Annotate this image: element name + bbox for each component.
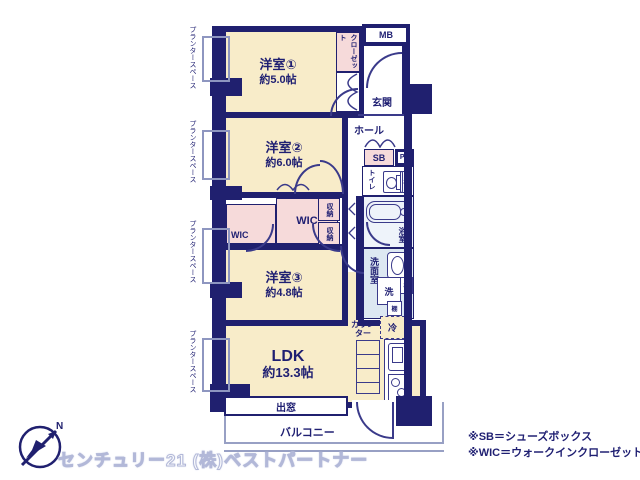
room-1-name: 洋室①: [259, 56, 296, 73]
shoe-box: SB: [364, 149, 394, 166]
planter-box-4: [202, 338, 230, 392]
balcony-door-leaf: [392, 402, 394, 439]
washer-label: 洗: [384, 285, 393, 298]
room-3-size: 約4.8帖: [265, 286, 302, 301]
wall-entrance-block: [402, 84, 432, 114]
entrance-step-line: [358, 114, 406, 116]
wall-right-main: [404, 112, 412, 402]
sb-folding-door-icon: [364, 132, 396, 148]
wall-left-block-3: [210, 282, 242, 298]
compass-north-label: N: [56, 421, 63, 432]
fridge-space: 冷: [380, 316, 405, 339]
meter-box: MB: [362, 24, 410, 46]
storage-top-label: 収納: [324, 203, 334, 217]
planter-box-2: [202, 130, 230, 180]
room-3-name: 洋室③: [265, 269, 302, 286]
bay-window-label: 出窓: [276, 399, 296, 414]
room-2-size: 約6.0帖: [265, 156, 302, 171]
note-sb: ※SB＝シューズボックス: [468, 428, 592, 444]
planter-label-4: プランタースペース: [188, 330, 196, 393]
toilet-label: トイレ: [367, 169, 375, 190]
washroom-shelf-2-label: 棚: [391, 304, 397, 313]
room-1-size: 約5.0帖: [259, 73, 296, 88]
planter-label-3: プランタースペース: [188, 220, 196, 283]
planter-box-3: [202, 228, 230, 284]
storage-top: 収納: [318, 198, 340, 221]
planter-box-1: [202, 36, 230, 82]
entrance-label: 玄関: [372, 94, 392, 109]
wall-kitchen-block: [396, 396, 432, 426]
wic-folding-door-icon: [276, 178, 310, 191]
ldk-size: 約13.3帖: [262, 365, 313, 380]
note-wic: ※WIC＝ウォークインクローゼット: [468, 444, 640, 460]
bay-window: 出窓: [224, 396, 348, 416]
ldk-name: LDK: [272, 348, 305, 365]
washroom-shelf-2: 棚: [387, 301, 402, 316]
mb-label: MB: [379, 30, 393, 40]
planter-label-2: プランタースペース: [188, 120, 196, 183]
storage-door-chevron-bottom: [348, 226, 356, 240]
fridge-label: 冷: [388, 321, 397, 334]
wall-left-block-2: [210, 186, 242, 200]
company-watermark: センチュリー21 (株)ベストパートナー: [58, 446, 368, 471]
closet: クローゼット: [336, 32, 360, 72]
entrance-door-arc: [366, 52, 402, 88]
closet-label: クローゼット: [337, 34, 359, 70]
balcony-label: バルコニー: [280, 424, 335, 440]
room-2-name: 洋室②: [265, 139, 302, 156]
counter-label: カウンター: [348, 320, 378, 338]
sb-label: SB: [373, 153, 386, 163]
storage-door-chevron-top: [348, 202, 356, 216]
counter-shelf: [356, 340, 380, 394]
planter-label-1: プランタースペース: [188, 26, 196, 89]
